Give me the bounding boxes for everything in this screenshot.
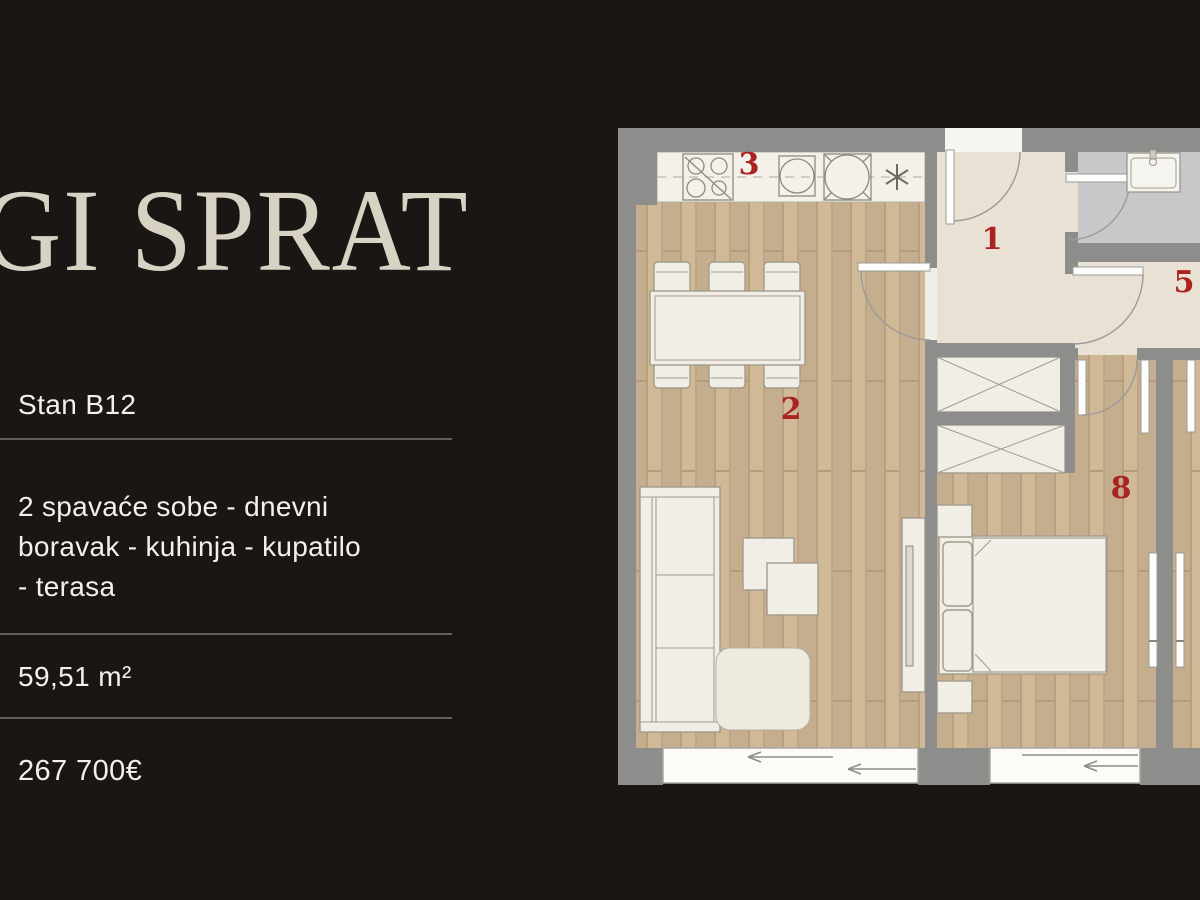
sofa — [640, 487, 720, 732]
washing-machine-icon — [824, 154, 871, 200]
bathroom-sink-icon — [1127, 150, 1180, 192]
unit-area: 59,51 m² — [18, 661, 132, 693]
pillow — [943, 542, 972, 606]
nightstand — [937, 505, 972, 537]
floor-plan: 3 1 2 5 8 — [615, 125, 1200, 790]
kitchen-counter — [657, 152, 925, 202]
divider — [0, 438, 452, 440]
double-bed — [939, 536, 1107, 674]
page: GI SPRAT Stan B12 2 spavaće sobe - dnevn… — [0, 0, 1200, 900]
room-label-bedroom: 8 — [1111, 471, 1132, 506]
room-label-room-5: 5 — [1174, 265, 1195, 300]
tv-icon — [906, 546, 913, 666]
unit-name: Stan B12 — [18, 389, 136, 421]
room-label-living-room: 2 — [781, 392, 802, 427]
divider — [0, 633, 452, 635]
room-label-kitchen: 3 — [739, 147, 760, 182]
unit-description: 2 spavaće sobe - dnevni boravak - kuhinj… — [18, 487, 361, 607]
description-line: - terasa — [18, 567, 361, 607]
nightstand — [937, 681, 972, 713]
bedroom-window — [990, 748, 1140, 783]
pillow — [943, 610, 972, 671]
divider — [0, 717, 452, 719]
dining-table — [650, 291, 805, 365]
room-label-hallway: 1 — [982, 222, 1003, 257]
dining-set — [650, 262, 805, 388]
rug — [716, 648, 810, 730]
living-room-window — [663, 748, 918, 783]
page-title: GI SPRAT — [0, 172, 469, 290]
tv-console — [902, 518, 925, 692]
unit-price: 267 700€ — [18, 755, 142, 788]
description-line: boravak - kuhinja - kupatilo — [18, 527, 361, 567]
description-line: 2 spavaće sobe - dnevni — [18, 487, 361, 527]
